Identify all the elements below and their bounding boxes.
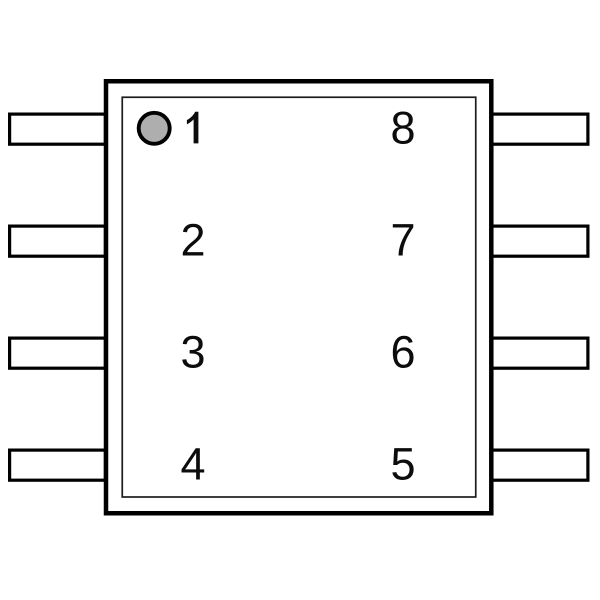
- svg-text:5: 5: [391, 439, 416, 490]
- svg-text:7: 7: [391, 215, 416, 266]
- svg-text:8: 8: [391, 103, 416, 154]
- svg-text:2: 2: [181, 215, 206, 266]
- svg-text:3: 3: [181, 327, 206, 378]
- svg-text:4: 4: [181, 439, 206, 490]
- svg-text:6: 6: [391, 327, 416, 378]
